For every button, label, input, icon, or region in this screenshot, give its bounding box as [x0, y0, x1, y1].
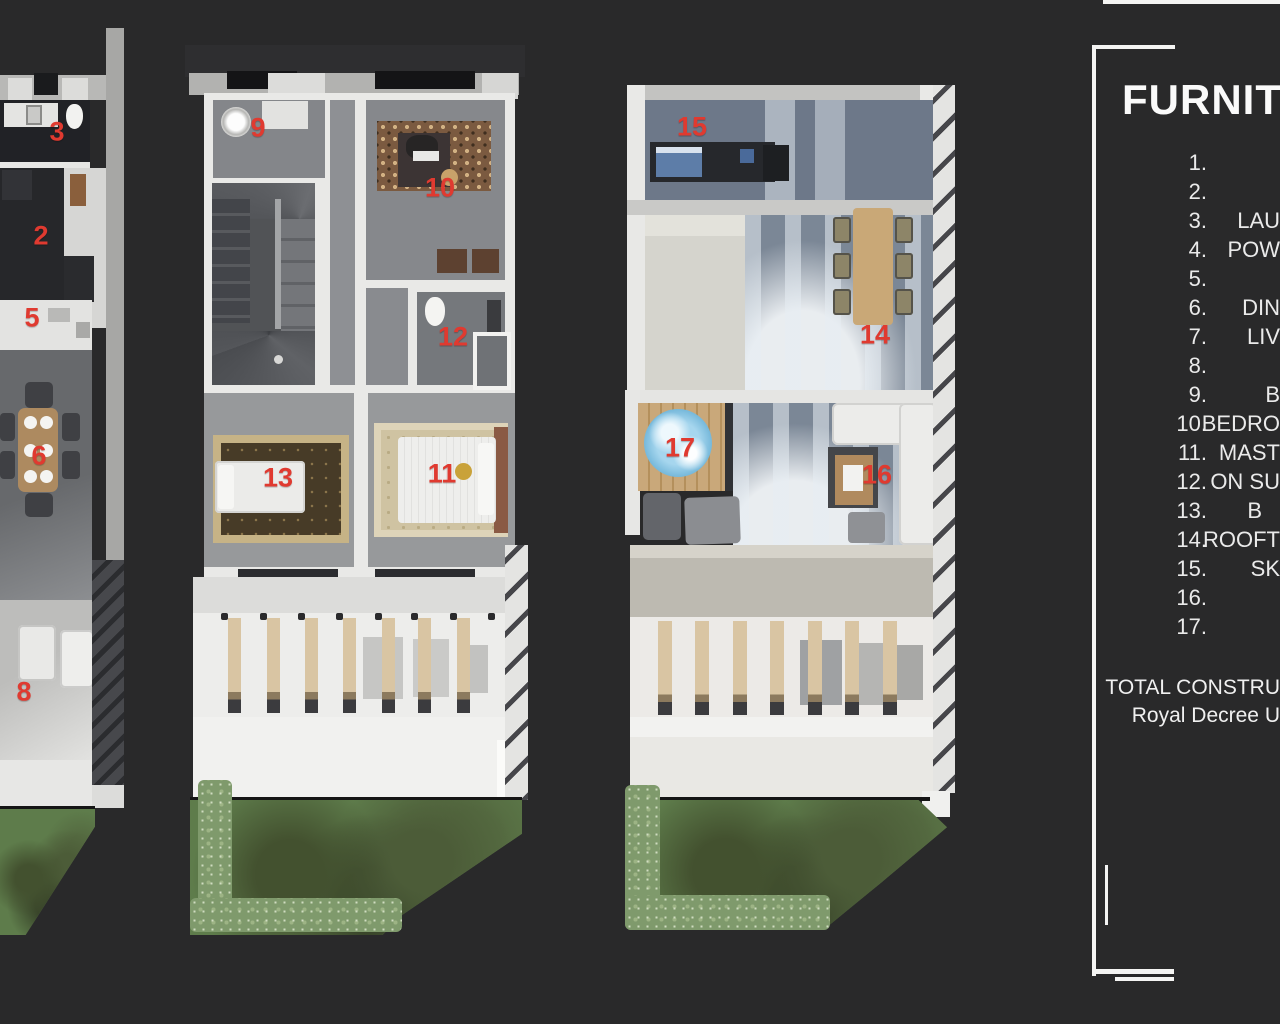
chair-icon	[833, 289, 851, 315]
bench-icon	[437, 249, 467, 273]
item-label: MAST	[1219, 440, 1280, 466]
item-label: LIV	[1247, 324, 1280, 350]
plate-icon	[24, 470, 37, 483]
chair-icon	[895, 217, 913, 243]
item-label: DIN	[1242, 295, 1280, 321]
item-label: B	[1247, 498, 1262, 524]
pergola-slat	[695, 621, 709, 715]
room-marker-10: 10	[425, 175, 455, 202]
round-sink-icon	[221, 107, 251, 137]
legend-item-17: 17.	[1080, 614, 1280, 643]
sofa-arm	[899, 403, 937, 545]
newel-post	[274, 355, 283, 364]
shrub-row	[625, 895, 830, 930]
pergola-slat	[883, 621, 897, 715]
headboard-icon	[494, 427, 508, 533]
item-label: BEDRO	[1202, 411, 1280, 437]
pergola-dot	[260, 613, 267, 620]
fixture	[76, 322, 90, 338]
terrace	[630, 737, 940, 800]
counter-area	[0, 300, 92, 350]
pantry-box	[70, 174, 86, 206]
legend-item-3: 3.LAU	[1080, 208, 1280, 237]
frame-corner-line	[1092, 45, 1175, 49]
pergola-dot	[221, 613, 228, 620]
item-number: 15.	[1176, 556, 1207, 582]
item-number: 11.	[1178, 440, 1207, 466]
terrace	[0, 760, 92, 808]
room-marker-13: 13	[263, 465, 293, 492]
room-marker-16: 16	[862, 462, 892, 489]
cabinet-icon	[763, 145, 789, 181]
total-construction-text: TOTAL CONSTRU	[1105, 676, 1280, 700]
window-sill	[238, 569, 338, 577]
chair-icon	[25, 493, 53, 517]
sink-icon	[740, 149, 754, 163]
pillow-icon	[478, 443, 494, 515]
chair-icon	[895, 253, 913, 279]
room-marker-8: 8	[16, 679, 31, 706]
pergola-slat	[418, 618, 431, 713]
terrace	[193, 717, 517, 800]
room-marker-6: 6	[31, 443, 46, 470]
pergola-dot	[298, 613, 305, 620]
rooftop-table	[853, 208, 893, 325]
legend-item-2: 2.	[1080, 179, 1280, 208]
pillow-icon	[218, 465, 234, 509]
item-label: B	[1265, 382, 1280, 408]
window-sill	[375, 569, 475, 577]
item-label: POW	[1227, 237, 1280, 263]
rooftop-left-floor	[645, 215, 745, 390]
lounger-icon	[684, 496, 741, 545]
item-number: 2.	[1189, 179, 1207, 205]
fridge-icon	[2, 170, 32, 200]
wall-band	[627, 200, 953, 215]
sofa-icon	[18, 625, 56, 681]
room-marker-14: 14	[860, 322, 890, 349]
legend-item-1: 1.	[1080, 150, 1280, 179]
item-number: 16.	[1176, 585, 1207, 611]
roof-dark-bar	[375, 71, 475, 89]
legend-item-5: 5.	[1080, 266, 1280, 295]
balcony-corridor	[193, 577, 517, 613]
wall-band	[627, 390, 937, 403]
room-marker-17: 17	[665, 435, 695, 462]
stair-flight-right	[281, 219, 315, 345]
item-number: 5.	[1189, 266, 1207, 292]
pergola-dot	[375, 613, 382, 620]
shrub-row	[190, 898, 402, 932]
legend-item-6: 6.DIN	[1080, 295, 1280, 324]
pergola-slat	[382, 618, 395, 713]
staircase	[212, 183, 315, 385]
chair-icon	[833, 253, 851, 279]
stair-winder-bottom	[212, 331, 315, 385]
legend-title: FURNIT	[1122, 76, 1280, 124]
plan3-top-wall	[627, 85, 953, 100]
terrace-box	[893, 645, 923, 700]
sofa-icon	[60, 630, 94, 688]
pergola-dot	[411, 613, 418, 620]
item-label: ROOFT	[1203, 527, 1280, 553]
laundry-room	[0, 100, 90, 162]
frame-bottom-accent	[1115, 977, 1174, 981]
terrace-block	[92, 785, 124, 808]
pergola-slat	[733, 621, 747, 715]
legend-item-13: 13.B	[1080, 498, 1280, 527]
legend-item-4: 4.POW	[1080, 237, 1280, 266]
plan1-wall-block	[8, 78, 32, 100]
counter-block	[64, 256, 94, 302]
item-number: 17.	[1176, 614, 1207, 640]
plan1-wall-block	[62, 78, 88, 100]
frame-top-line	[1103, 0, 1280, 4]
pergola-slat	[658, 621, 672, 715]
legend-item-10: 10.BEDRO	[1080, 411, 1280, 440]
side-stair-strip	[933, 85, 955, 793]
item-number: 1.	[1189, 150, 1207, 176]
bathroom-9	[213, 100, 325, 178]
legend-item-9: 9.B	[1080, 382, 1280, 411]
item-number: 7.	[1189, 324, 1207, 350]
room-marker-9: 9	[250, 115, 265, 142]
privacy-screen	[725, 403, 733, 491]
rooftop-dining-floor	[745, 215, 937, 390]
chair-icon	[62, 413, 80, 441]
book-icon	[843, 465, 863, 491]
pergola-dot	[488, 613, 495, 620]
chair-icon	[0, 413, 15, 441]
frame-accent-tick	[1105, 865, 1108, 925]
plan1-roof-piece	[34, 73, 58, 95]
washer-icon	[26, 105, 42, 125]
side-stair-strip	[92, 560, 124, 805]
item-number: 4.	[1189, 237, 1207, 263]
pergola-zone	[630, 617, 940, 717]
white-band	[630, 717, 940, 737]
room-marker-5: 5	[24, 305, 39, 332]
chair-icon	[895, 289, 913, 315]
toilet-icon	[66, 104, 83, 129]
room-marker-2: 2	[33, 223, 48, 250]
garden-grass	[0, 809, 95, 935]
item-number: 13.	[1176, 498, 1207, 524]
legend-item-11: 11.MAST	[1080, 440, 1280, 469]
dining-room	[0, 350, 92, 600]
frame-bottom-line	[1092, 969, 1174, 974]
kitchenette-icon	[656, 147, 702, 177]
stair-flight-left	[212, 199, 250, 323]
pergola-slat	[305, 618, 318, 713]
chair-icon	[25, 382, 53, 408]
chair-icon	[62, 451, 80, 479]
pergola-slat	[845, 621, 859, 715]
room-marker-11: 11	[428, 461, 457, 488]
room-marker-3: 3	[49, 119, 64, 146]
pergola-dot	[450, 613, 457, 620]
legend-item-12: 12.ON SU	[1080, 469, 1280, 498]
item-number: 9.	[1189, 382, 1207, 408]
shower-icon	[473, 332, 511, 390]
corridor-12	[366, 288, 408, 385]
item-number: 3.	[1189, 208, 1207, 234]
floor-plan-sheet: 3 2 5 6 8	[0, 0, 1280, 1024]
ottoman-icon	[848, 512, 885, 543]
pergola-zone	[193, 613, 517, 717]
item-label: SK	[1251, 556, 1280, 582]
item-label: LAU	[1237, 208, 1280, 234]
side-stair-strip	[505, 545, 528, 800]
left-wall	[627, 100, 645, 390]
vanity-counter	[262, 101, 308, 129]
pergola-dot	[336, 613, 343, 620]
item-number: 8.	[1189, 353, 1207, 379]
room-marker-12: 12	[438, 324, 468, 351]
plate-icon	[24, 416, 37, 429]
pergola-slat	[457, 618, 470, 713]
item-number: 6.	[1189, 295, 1207, 321]
bench-icon	[472, 249, 499, 273]
item-label: ON SU	[1210, 469, 1280, 495]
plate-icon	[40, 470, 53, 483]
gold-pouf-icon	[455, 463, 472, 480]
room-marker-15: 15	[677, 114, 707, 141]
pergola-slat	[267, 618, 280, 713]
legend-item-14: 14.ROOFT	[1080, 527, 1280, 556]
plan-first-floor: 9 10 12 13 11	[185, 45, 525, 938]
parapet-band	[630, 545, 950, 617]
royal-decree-text: Royal Decree U	[1132, 704, 1280, 728]
living-room	[0, 600, 92, 760]
pergola-slat	[343, 618, 356, 713]
lounger-icon	[643, 493, 681, 540]
legend-item-7: 7.LIV	[1080, 324, 1280, 353]
sink-icon	[48, 308, 70, 322]
pergola-slat	[770, 621, 784, 715]
legend-item-8: 8.	[1080, 353, 1280, 382]
legend-item-15: 15.SK	[1080, 556, 1280, 585]
pergola-slat	[228, 618, 241, 713]
plate-icon	[40, 416, 53, 429]
furniture-list: 1. 2. 3.LAU 4.POW 5. 6.DIN 7.LIV 8. 9.B …	[1080, 150, 1280, 643]
pergola-slat	[808, 621, 822, 715]
furniture-legend-panel: FURNIT 1. 2. 3.LAU 4.POW 5. 6.DIN 7.LIV …	[1080, 0, 1280, 1024]
item-number: 12.	[1176, 469, 1207, 495]
hall-strip	[330, 100, 355, 385]
plan-ground-floor: 3 2 5 6 8	[0, 28, 124, 935]
chair-icon	[0, 451, 15, 479]
legend-item-16: 16.	[1080, 585, 1280, 614]
monitor-icon	[413, 151, 439, 161]
plan-roof-floor: 15 14 17 16	[625, 85, 955, 935]
chair-icon	[833, 217, 851, 243]
